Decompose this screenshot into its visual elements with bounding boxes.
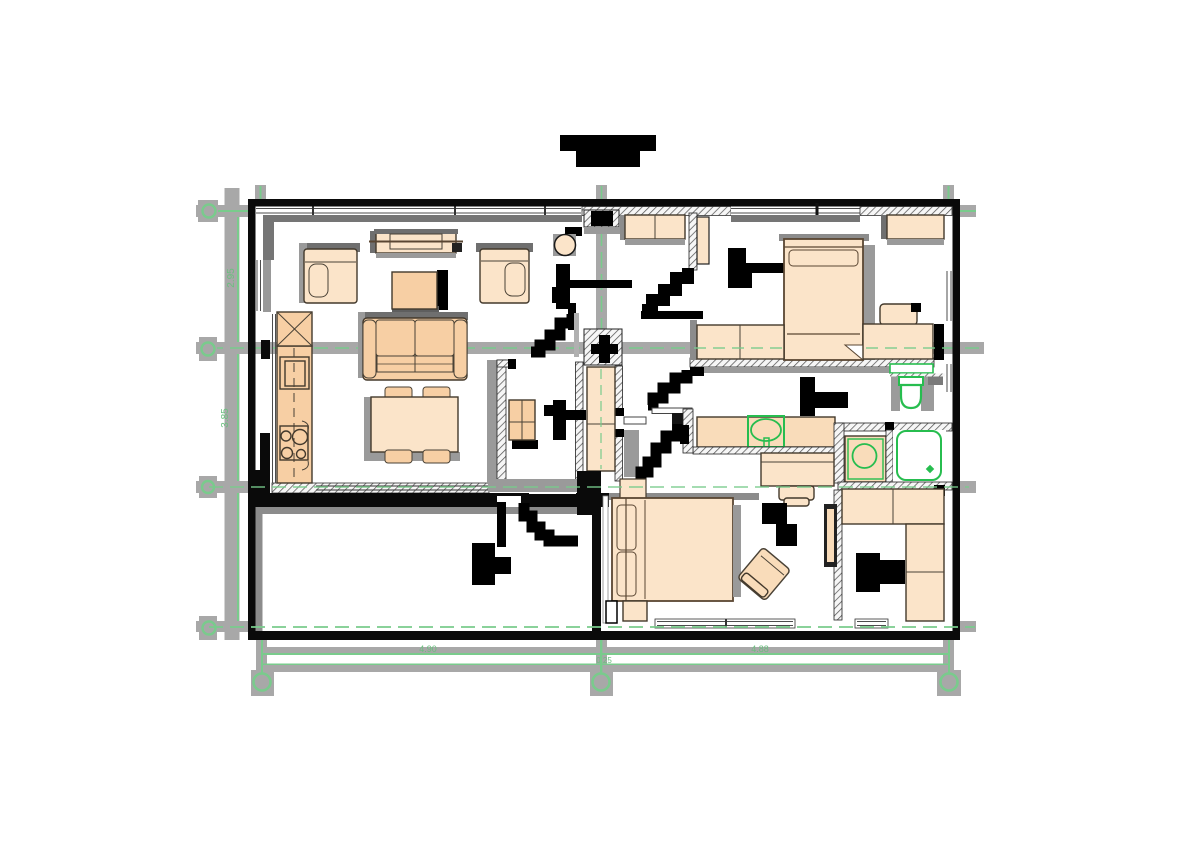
svg-text:3.85: 3.85: [220, 408, 231, 428]
svg-text:4.90: 4.90: [419, 644, 437, 654]
svg-text:4.88: 4.88: [751, 644, 769, 654]
svg-text:2.95: 2.95: [226, 268, 237, 288]
